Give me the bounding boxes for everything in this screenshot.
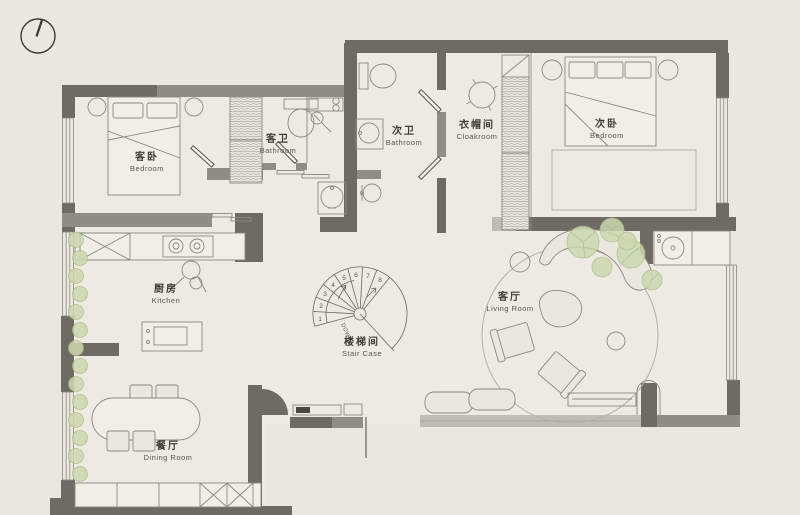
north-indicator-icon (21, 19, 55, 53)
room-label-living-room: 客厅 Living Room (486, 291, 533, 314)
dining-chair (107, 431, 129, 451)
room-name-en: Cloakroom (457, 132, 498, 142)
room-name-zh: 餐厅 (144, 440, 193, 453)
guest-wardrobe (230, 97, 262, 183)
room-name-zh: 次卫 (386, 125, 423, 138)
svg-text:4: 4 (331, 282, 335, 289)
room-name-zh: 厨房 (152, 283, 181, 296)
laundry-counter (654, 231, 730, 265)
coffee-table (540, 290, 582, 326)
room-name-en: Bathroom (260, 146, 297, 156)
room-name-zh: 客卧 (130, 151, 164, 164)
guest-bed (108, 97, 180, 195)
room-name-en: Dining Room (144, 453, 193, 463)
svg-text:3: 3 (323, 291, 327, 298)
room-name-en: Bedroom (590, 131, 624, 141)
room-name-zh: 客厅 (486, 291, 533, 304)
svg-text:8: 8 (378, 277, 382, 284)
room-label-guest-bedroom: 客卧 Bedroom (130, 151, 164, 174)
svg-text:1: 1 (318, 316, 322, 323)
room-label-second-bathroom: 次卫 Bathroom (386, 125, 423, 148)
room-name-en: Stair Case (342, 349, 382, 359)
room-name-en: Living Room (486, 304, 533, 314)
room-name-en: Kitchen (152, 296, 181, 306)
svg-text:7: 7 (366, 273, 370, 280)
kitchen-island (142, 322, 202, 351)
room-name-zh: 楼梯间 (342, 336, 382, 349)
room-name-en: Bathroom (386, 138, 423, 148)
room-name-en: Bedroom (130, 164, 164, 174)
room-name-zh: 衣帽间 (457, 119, 498, 132)
room-label-kitchen: 厨房 Kitchen (152, 283, 181, 306)
dining-sideboard (75, 483, 261, 507)
svg-text:6: 6 (354, 272, 358, 279)
cloakroom-wardrobe (502, 77, 529, 230)
room-label-staircase: 楼梯间 Stair Case (342, 336, 382, 359)
room-label-cloakroom: 衣帽间 Cloakroom (457, 119, 498, 142)
kitchen-counter (75, 233, 245, 260)
room-name-zh: 次卧 (590, 118, 624, 131)
room-label-dining-room: 餐厅 Dining Room (144, 440, 193, 463)
svg-text:2: 2 (319, 303, 323, 310)
room-label-second-bedroom: 次卧 Bedroom (590, 118, 624, 141)
room-label-guest-bathroom: 客卫 Bathroom (260, 133, 297, 156)
room-name-zh: 客卫 (260, 133, 297, 146)
svg-text:5: 5 (342, 275, 346, 282)
floor-plan: 1 2 3 4 5 6 7 8 DOWN 客卧 Bedroom 客卫 Bathr (0, 0, 800, 515)
floor-plan-svg: 1 2 3 4 5 6 7 8 DOWN (0, 0, 800, 515)
